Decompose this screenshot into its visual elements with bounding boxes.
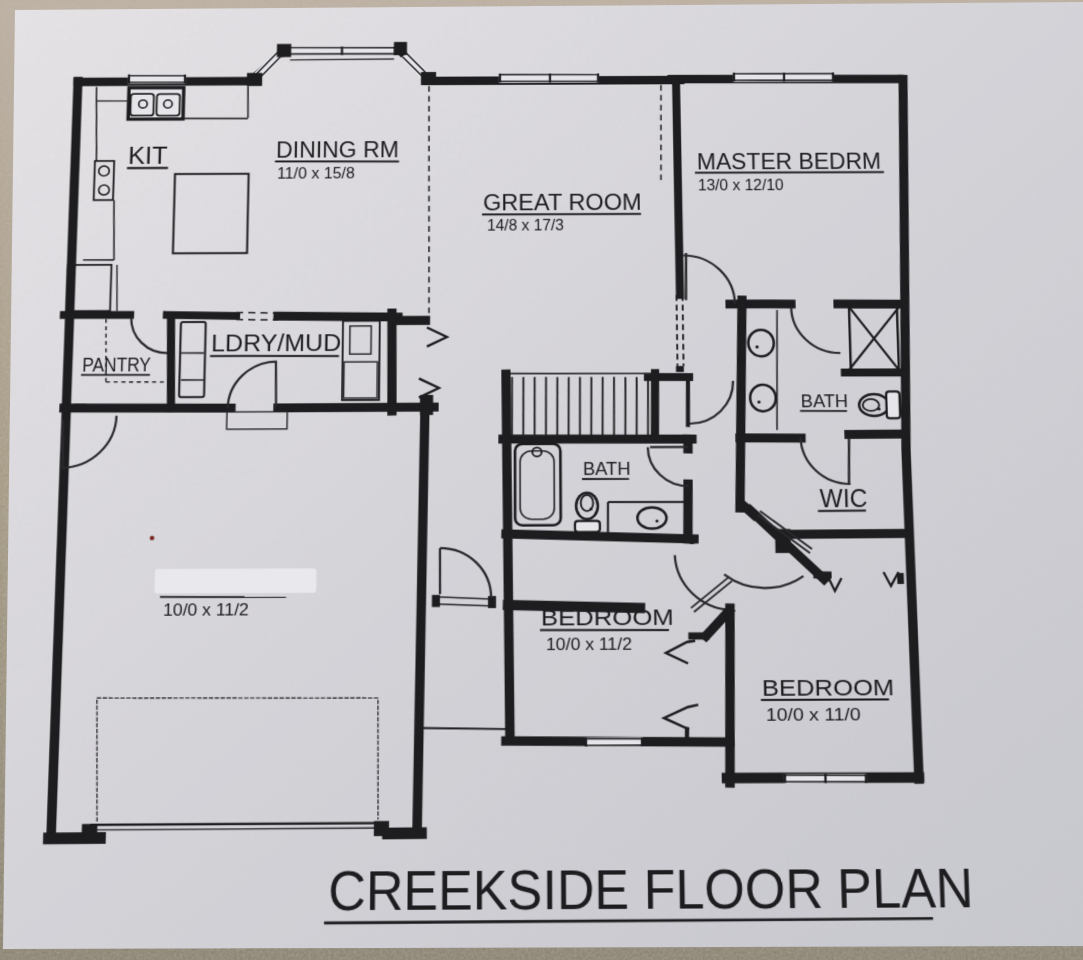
svg-text:DINING RM: DINING RM [276,136,399,162]
svg-text:KIT: KIT [128,142,168,170]
svg-text:CREEKSIDE FLOOR PLAN: CREEKSIDE FLOOR PLAN [328,856,975,922]
svg-text:LDRY/MUD: LDRY/MUD [211,330,341,357]
svg-text:PANTRY: PANTRY [82,354,152,377]
svg-text:13/0 x 12/10: 13/0 x 12/10 [698,177,784,194]
svg-text:GREAT ROOM: GREAT ROOM [483,189,642,216]
svg-text:10/0 x 11/2: 10/0 x 11/2 [163,601,249,619]
svg-text:BATH: BATH [801,390,849,412]
svg-text:10/0 x 11/0: 10/0 x 11/0 [766,706,861,725]
svg-text:WIC: WIC [819,484,867,513]
svg-text:BEDROOM: BEDROOM [541,606,674,631]
svg-text:14/8 x 17/3: 14/8 x 17/3 [487,217,564,234]
svg-text:BEDROOM: BEDROOM [762,676,895,701]
svg-text:MASTER BEDRM: MASTER BEDRM [697,148,882,174]
svg-text:BATH: BATH [583,458,631,480]
svg-text:10/0 x 11/2: 10/0 x 11/2 [546,636,632,655]
svg-text:11/0 x 15/8: 11/0 x 15/8 [277,165,355,182]
